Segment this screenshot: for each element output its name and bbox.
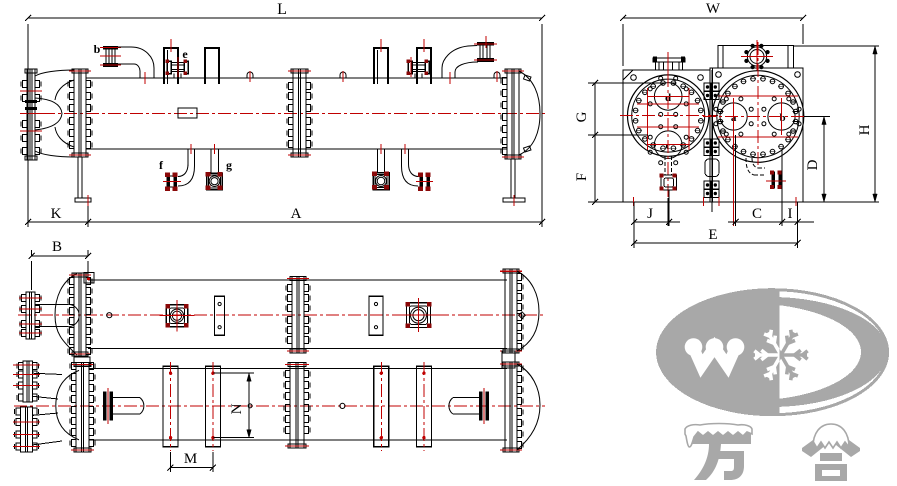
svg-text:L: L [277,1,287,18]
svg-text:B: B [52,239,62,255]
svg-text:A: A [291,206,302,222]
svg-text:K: K [51,206,62,222]
svg-text:b: b [779,112,785,124]
svg-text:D: D [805,159,821,170]
svg-text:E: E [708,227,717,243]
svg-text:C: C [752,206,762,222]
svg-text:M: M [184,451,197,467]
svg-text:J: J [647,206,653,222]
svg-text:e: e [182,47,188,61]
svg-text:b: b [94,42,101,56]
svg-text:G: G [574,111,590,122]
svg-text:g: g [226,158,232,172]
svg-text:F: F [574,173,590,181]
svg-text:I: I [788,206,793,222]
svg-text:W: W [706,1,721,17]
svg-text:N: N [229,403,245,414]
svg-text:H: H [857,124,873,135]
